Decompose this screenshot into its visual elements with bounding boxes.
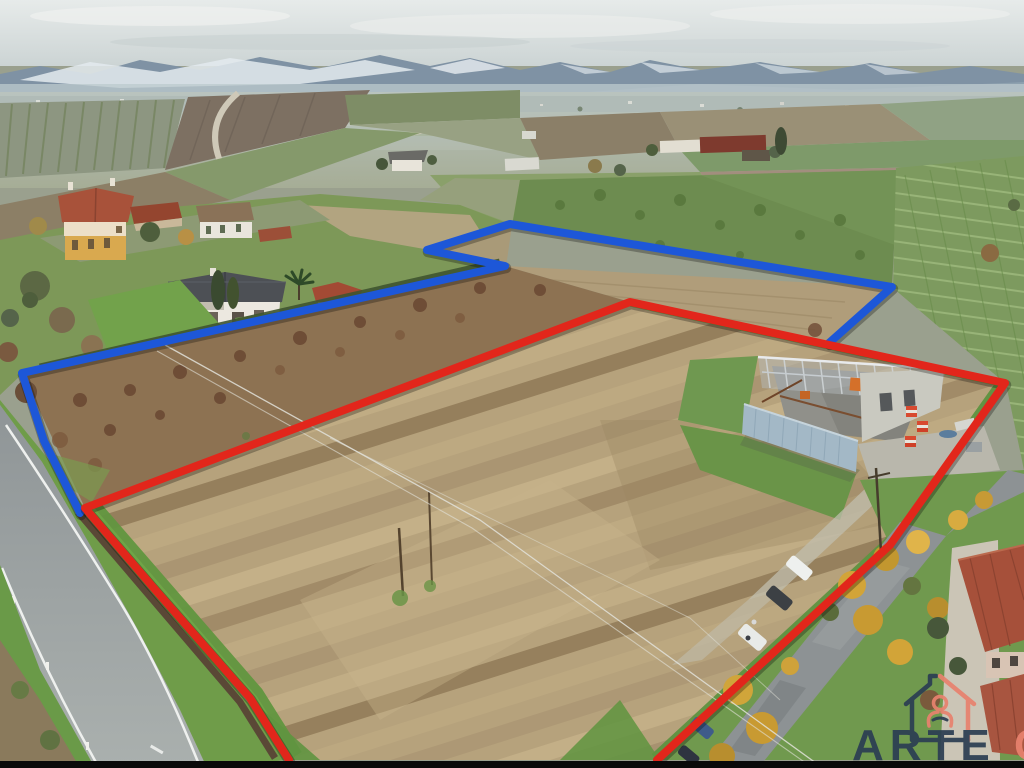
aerial-photo: ARTE CASA: [0, 0, 1024, 768]
brand-text-arte: ARTE: [852, 721, 996, 768]
scrub-meadow: [512, 170, 898, 287]
boat: [939, 430, 957, 438]
poplar-tree: [775, 127, 787, 155]
greenhouse: [505, 157, 540, 171]
person: [752, 620, 757, 625]
person: [746, 636, 751, 641]
brand-text-casa: CASA: [1014, 721, 1024, 768]
sky: [0, 0, 1024, 66]
letterbox-bar: [0, 761, 1024, 768]
lone-autumn-tree: [981, 244, 999, 262]
brand-text: ARTE CASA: [852, 721, 1024, 768]
white-house: [196, 202, 254, 238]
